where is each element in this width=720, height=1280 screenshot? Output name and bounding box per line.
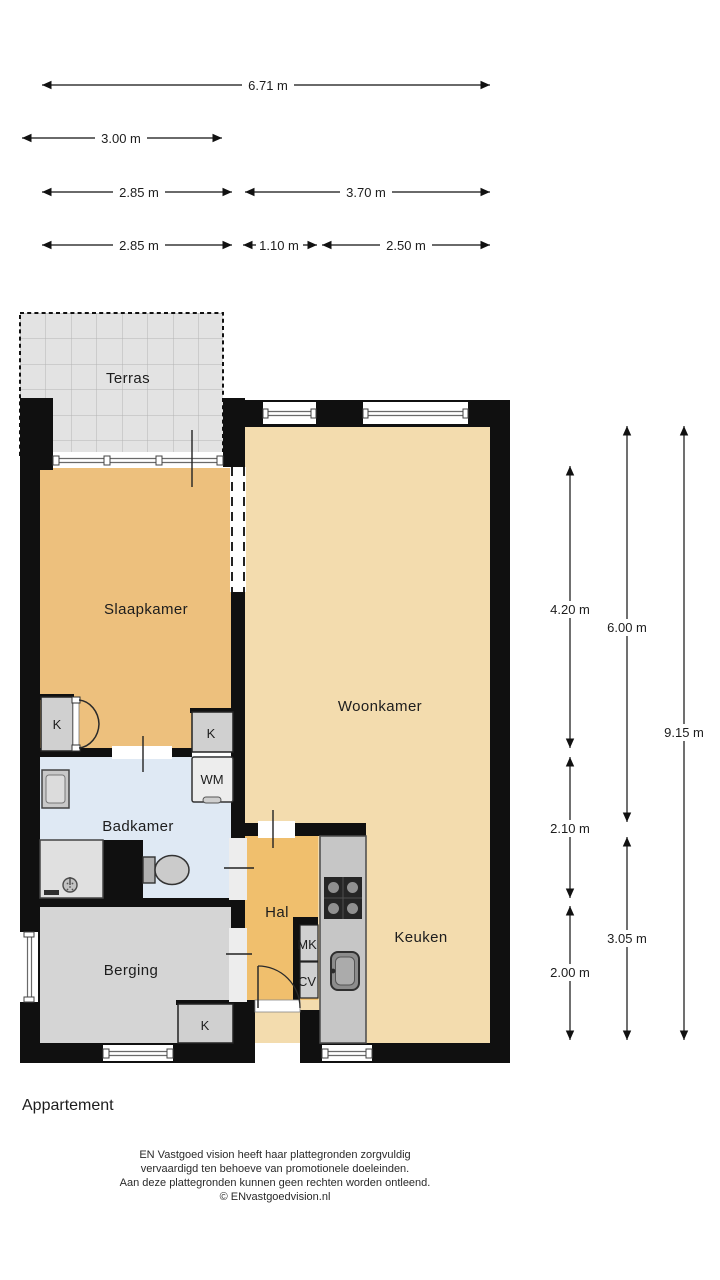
kitchen-sink-icon bbox=[331, 952, 359, 990]
window-kitchen-bottom bbox=[322, 1045, 372, 1061]
dashed-partition bbox=[230, 467, 246, 592]
dim-label-living-width: 3.70 m bbox=[346, 185, 386, 200]
disclaimer-line-3: Aan deze plattegronden kunnen geen recht… bbox=[120, 1177, 431, 1189]
closet-label-k3: K bbox=[201, 1018, 210, 1033]
bathroom-sink-icon bbox=[42, 770, 69, 808]
wall-entrance-right-jamb bbox=[300, 1010, 322, 1063]
doorway-bedroom-bathroom bbox=[112, 746, 172, 759]
doorway-bathroom-hall bbox=[229, 838, 247, 900]
doorway-storage-hall bbox=[229, 928, 247, 1002]
wall-entrance-left-jamb bbox=[243, 1000, 255, 1063]
room-label-slaapkamer: Slaapkamer bbox=[104, 601, 188, 618]
wall-living-hall bbox=[231, 823, 366, 836]
window-living-1 bbox=[263, 402, 316, 424]
dim-label-bedroom-depth: 4.20 m bbox=[550, 602, 590, 617]
closet-label-mk: MK bbox=[297, 937, 317, 952]
wall-right bbox=[490, 400, 510, 1063]
wall-left bbox=[20, 470, 40, 1000]
closet-label-k1: K bbox=[53, 717, 62, 732]
room-label-berging: Berging bbox=[104, 962, 159, 979]
dim-label-bedroom-width: 2.85 m bbox=[119, 185, 159, 200]
dim-label-terrace-width: 3.00 m bbox=[101, 131, 141, 146]
dim-label-kitchen-depth: 3.05 m bbox=[607, 931, 647, 946]
dim-label-bedroom-width-2: 2.85 m bbox=[119, 238, 159, 253]
closet-label-k2: K bbox=[207, 726, 216, 741]
floor-plan-svg: Terras Slaapkamer Woonkamer Badkamer Hal… bbox=[0, 0, 720, 1280]
window-living-2 bbox=[363, 402, 468, 424]
dim-label-total-width: 6.71 m bbox=[248, 78, 288, 93]
dim-label-hall-width: 1.10 m bbox=[259, 238, 299, 253]
room-label-hal: Hal bbox=[265, 904, 289, 921]
wall-top-left-block bbox=[20, 398, 53, 470]
disclaimer-line-4: © ENvastgoedvision.nl bbox=[220, 1191, 331, 1203]
room-label-keuken: Keuken bbox=[394, 929, 447, 946]
dim-label-bathroom-depth: 2.10 m bbox=[550, 821, 590, 836]
dimensions-right: 4.20 m 6.00 m 9.15 m 2.10 m 3.05 m 2.00 … bbox=[544, 426, 710, 1040]
room-label-badkamer: Badkamer bbox=[102, 818, 174, 835]
disclaimer-line-1: EN Vastgoed vision heeft haar plattegron… bbox=[139, 1149, 410, 1161]
opening-living-hall bbox=[258, 821, 295, 838]
wall-bathroom-storage bbox=[40, 898, 232, 907]
window-storage-bottom bbox=[103, 1045, 173, 1061]
dimensions-top: 6.71 m 3.00 m 2.85 m 3.70 m 2.85 m 1.10 … bbox=[22, 77, 490, 253]
toilet-icon bbox=[143, 856, 189, 885]
closet-label-wm: WM bbox=[200, 772, 223, 787]
window-terrace-sliding-door bbox=[53, 452, 223, 468]
room-label-terras: Terras bbox=[106, 370, 150, 387]
dim-label-storage-depth: 2.00 m bbox=[550, 965, 590, 980]
dim-label-total-depth: 9.15 m bbox=[664, 725, 704, 740]
kitchen-counter bbox=[320, 836, 366, 1043]
page-title: Appartement bbox=[22, 1097, 114, 1114]
closet-label-cv: CV bbox=[298, 974, 316, 989]
shower-icon bbox=[40, 840, 103, 898]
wall-shower-stub bbox=[103, 840, 143, 898]
disclaimer-line-2: vervaardigd ten behoeve van promotionele… bbox=[141, 1163, 409, 1175]
room-label-woonkamer: Woonkamer bbox=[338, 698, 422, 715]
disclaimer: EN Vastgoed vision heeft haar plattegron… bbox=[120, 1149, 431, 1203]
dim-label-living-depth: 6.00 m bbox=[607, 620, 647, 635]
stove-icon bbox=[324, 877, 362, 919]
window-storage-left bbox=[20, 932, 38, 1002]
dim-label-kitchen-width: 2.50 m bbox=[386, 238, 426, 253]
floor-plan-page: Terras Slaapkamer Woonkamer Badkamer Hal… bbox=[0, 0, 720, 1280]
